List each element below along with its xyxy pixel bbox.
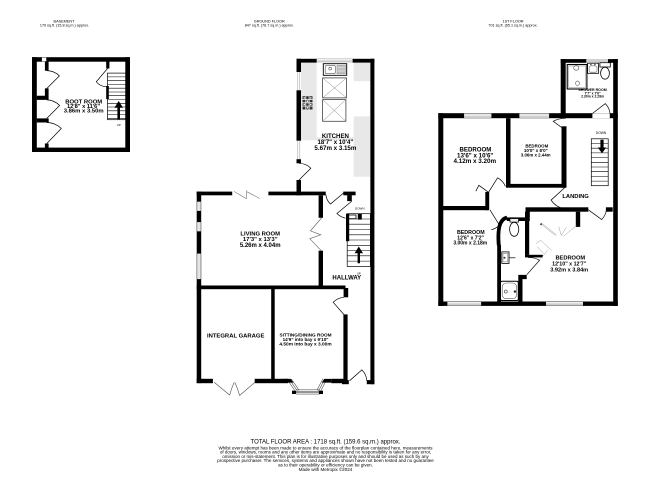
svg-text:14'9" into bay x 9'10": 14'9" into bay x 9'10" <box>283 337 329 342</box>
svg-text:847 sq.ft. (78.7 sq.m.) approx: 847 sq.ft. (78.7 sq.m.) approx. <box>245 23 294 27</box>
svg-text:3.92m x 3.84m: 3.92m x 3.84m <box>550 268 588 274</box>
svg-text:HALLWAY: HALLWAY <box>332 275 361 281</box>
svg-text:UP: UP <box>357 271 361 275</box>
svg-text:701 sq.ft. (65.1 sq.m.) approx: 701 sq.ft. (65.1 sq.m.) approx. <box>488 23 537 27</box>
svg-text:UP: UP <box>117 123 121 127</box>
svg-text:4.50m into bay x 3.00m: 4.50m into bay x 3.00m <box>279 342 331 348</box>
svg-text:INTEGRAL GARAGE: INTEGRAL GARAGE <box>207 333 265 339</box>
svg-text:5.67m x 3.15m: 5.67m x 3.15m <box>314 145 356 152</box>
svg-text:2.30m x 2.28m: 2.30m x 2.28m <box>581 94 604 98</box>
svg-text:4.12m x 3.20m: 4.12m x 3.20m <box>453 158 496 165</box>
svg-text:DOWN: DOWN <box>596 131 607 135</box>
svg-text:Made with Metropix ©2024: Made with Metropix ©2024 <box>299 466 353 472</box>
svg-text:LANDING: LANDING <box>562 194 589 200</box>
svg-text:3.06m x 2.44m: 3.06m x 2.44m <box>521 152 551 157</box>
svg-text:3.00m x 2.18m: 3.00m x 2.18m <box>453 240 487 246</box>
svg-text:DOWN: DOWN <box>355 206 365 210</box>
svg-text:5.26m x 4.04m: 5.26m x 4.04m <box>240 243 281 249</box>
svg-text:3.86m x 3.50m: 3.86m x 3.50m <box>64 108 104 114</box>
svg-text:170 sq.ft. (15.8 sq.m.) approx: 170 sq.ft. (15.8 sq.m.) approx. <box>40 23 89 27</box>
